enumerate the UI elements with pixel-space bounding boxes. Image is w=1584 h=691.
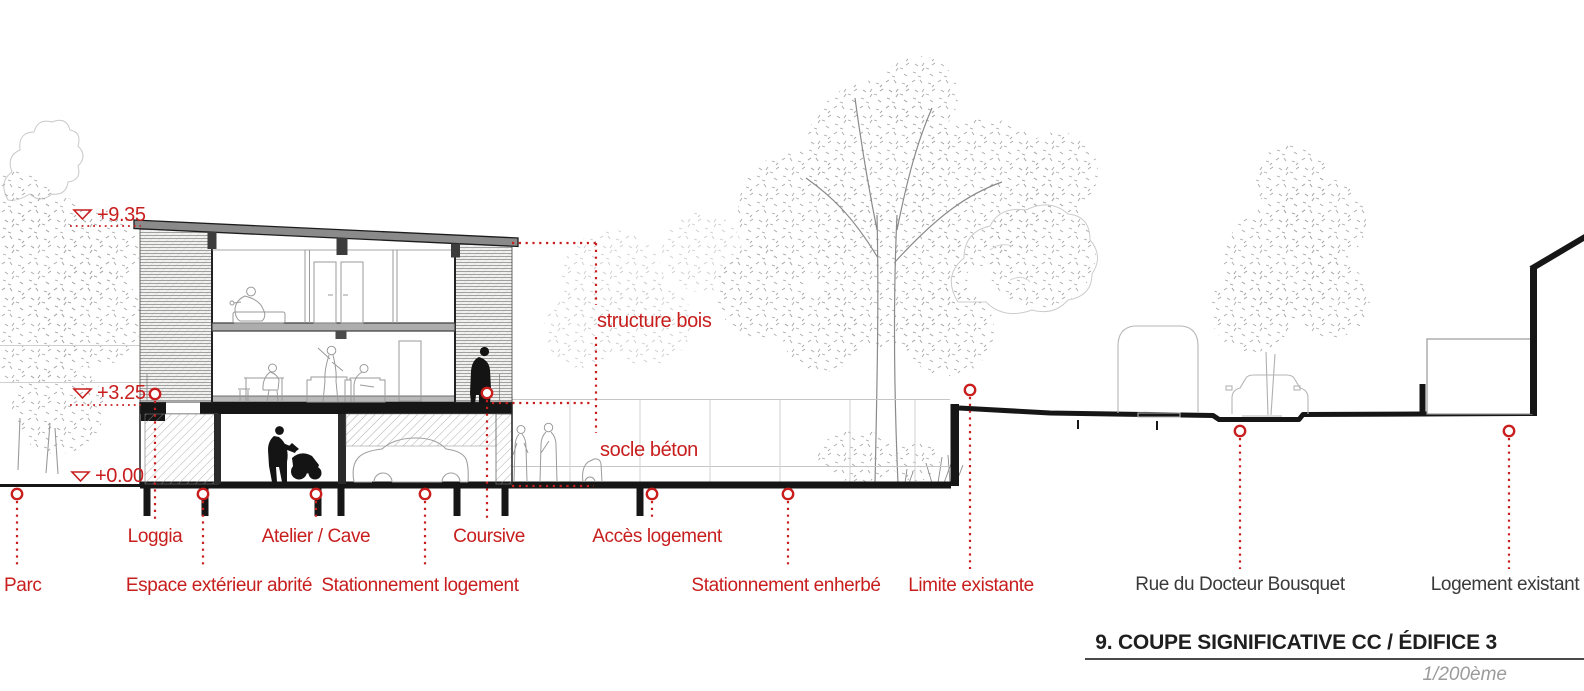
elevation-label-000: +0.00 [95,466,144,486]
title-rule [1085,658,1584,660]
rue-label: Rue du Docteur Bousquet [1135,575,1344,594]
car-outline [1232,375,1308,414]
scooter-outline [583,459,602,482]
garden-wall-stub [1420,384,1426,415]
stroller-silhouette [292,453,319,474]
pedestrian-outlines [513,423,602,482]
stationnement-enherbe-label: Stationnement enherbé [691,576,880,595]
upper-floor-interior [230,250,397,323]
socle-beton-label: socle béton [600,440,698,460]
big-tree [716,56,1098,484]
sheet-title: 9. COUPE SIGNIFICATIVE CC / ÉDIFICE 3 [1095,632,1497,653]
structure-bois-label: structure bois [597,311,711,331]
elevation-label-325: +3.25 [97,383,146,403]
logement-existant-label: Logement existant [1431,575,1579,594]
garden-trees [544,212,742,368]
existing-building [1427,234,1584,414]
garage-figure [268,436,288,482]
parking-ceiling-hatch [346,414,496,446]
parc-label: Parc [4,576,41,595]
stationnement-logement-label: Stationnement logement [321,576,518,595]
limite-existante-label: Limite existante [908,576,1034,595]
van-outline [1118,326,1198,413]
scale-label: 1/200ème [1422,665,1507,684]
elevation-label-935: +9.35 [97,205,146,225]
foundation-piles [144,488,644,516]
left-trees [0,120,142,474]
edifice-3-section [134,220,602,484]
espace-exterieur-label: Espace extérieur abrité [126,576,312,595]
atelier-cave-label: Atelier / Cave [262,527,370,546]
shrubs [818,430,963,483]
limite-wall [951,404,960,486]
floor-slab [212,323,455,331]
acces-logement-label: Accès logement [592,527,722,546]
section-sheet: +9.35 +3.25 +0.00 structure bois socle b… [0,0,1584,691]
loggia-label: Loggia [128,527,183,546]
existing-house-outline [1427,339,1532,414]
existing-roof-slope [1531,234,1584,269]
coursive-label: Coursive [453,527,525,546]
